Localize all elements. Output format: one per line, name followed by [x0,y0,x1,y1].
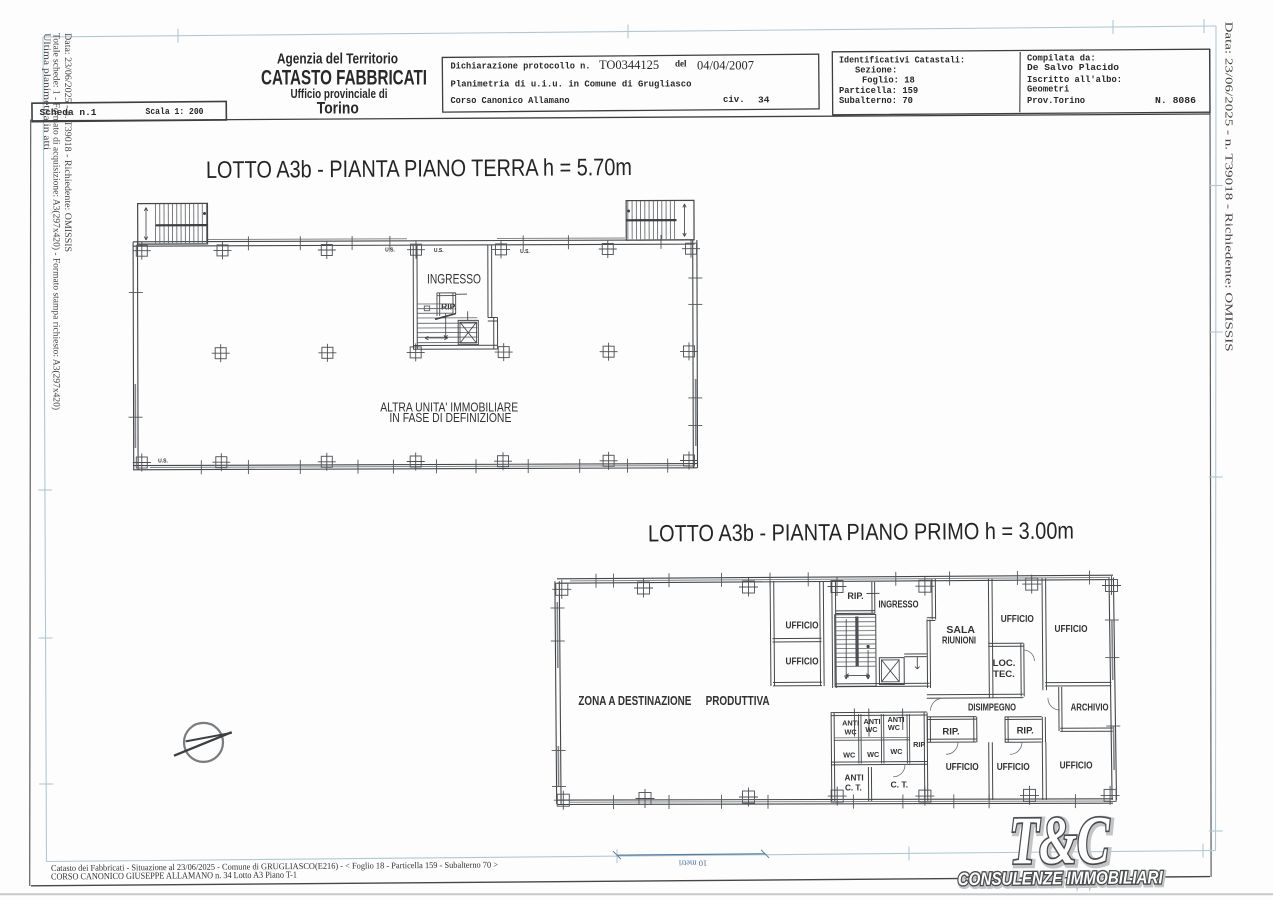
svg-text:WC: WC [843,751,856,760]
svg-text:N. 8086: N. 8086 [1155,96,1196,106]
svg-text:34: 34 [758,95,770,106]
svg-text:UFFICIO: UFFICIO [1060,761,1093,772]
svg-text:C. T.: C. T. [845,784,862,793]
svg-text:ZONA A DESTINAZIONE: ZONA A DESTINAZIONE [578,694,691,708]
svg-text:DISIMPEGNO: DISIMPEGNO [968,701,1016,713]
svg-text:Dichiarazione protocollo n.: Dichiarazione protocollo n. [451,62,591,72]
svg-text:WC: WC [867,750,880,759]
svg-text:Geometri: Geometri [1027,84,1069,94]
svg-text:Iscritto all'albo:: Iscritto all'albo: [1027,75,1122,85]
svg-text:Ultima planimetria in atti: Ultima planimetria in atti [41,33,52,150]
svg-text:Sezione:: Sezione: [855,66,897,76]
svg-text:Particella: 159: Particella: 159 [839,86,918,96]
svg-text:ARCHIVIO: ARCHIVIO [1071,701,1109,713]
svg-text:Compilata da:: Compilata da: [1027,54,1096,64]
svg-text:WC: WC [845,727,858,736]
svg-text:RIP.: RIP. [847,591,863,601]
svg-text:civ.: civ. [723,95,745,105]
svg-text:INGRESSO: INGRESSO [879,598,919,610]
svg-text:UFFICIO: UFFICIO [786,656,819,667]
svg-text:U.S.: U.S. [385,248,395,254]
svg-text:RIP.: RIP. [441,302,456,312]
svg-text:del: del [675,59,687,69]
svg-text:ANTI: ANTI [842,719,859,728]
svg-text:ANTI: ANTI [845,774,864,783]
svg-text:Torino: Torino [317,99,359,118]
svg-text:UFFICIO: UFFICIO [997,762,1030,773]
svg-text:Data: 23/06/2025 - n. T39018 -: Data: 23/06/2025 - n. T39018 - Richieden… [1222,22,1234,352]
svg-text:U.S.: U.S. [158,459,168,465]
svg-text:RIP.: RIP. [942,727,959,738]
svg-text:Identificativi Catastali:: Identificativi Catastali: [839,55,965,65]
svg-text:Planimetria di u.i.u. in Comun: Planimetria di u.i.u. in Comune di Grugl… [451,79,692,89]
svg-text:Prov.Torino: Prov.Torino [1027,96,1085,106]
svg-text:04/04/2007: 04/04/2007 [697,59,754,73]
svg-text:Subalterno: 70: Subalterno: 70 [839,96,913,106]
svg-text:LOTTO A3b - PIANTA PIANO TERRA: LOTTO A3b - PIANTA PIANO TERRA h = 5.70m [206,154,632,184]
svg-text:LOC.: LOC. [993,658,1016,669]
svg-text:U.S.: U.S. [520,249,530,255]
svg-text:UFFICIO: UFFICIO [786,620,819,631]
svg-text:TO0344125: TO0344125 [599,58,659,72]
svg-text:RIUNIONI: RIUNIONI [942,635,976,647]
svg-text:RIP: RIP [913,740,925,749]
svg-text:Scala 1: 200: Scala 1: 200 [146,106,204,117]
svg-text:Foglio: 18: Foglio: 18 [862,76,915,86]
svg-text:WC: WC [888,723,901,732]
svg-text:PRODUTTIVA: PRODUTTIVA [706,694,770,708]
svg-text:Corso Canonico Allamano: Corso Canonico Allamano [451,96,570,106]
svg-text:RIP.: RIP. [1017,726,1034,737]
svg-text:CONSULENZE IMMOBILIARI: CONSULENZE IMMOBILIARI [958,867,1164,889]
svg-text:TEC.: TEC. [993,669,1015,680]
svg-text:CORSO CANONICO GIUSEPPE ALLAMA: CORSO CANONICO GIUSEPPE ALLAMANO n. 34 L… [51,871,297,883]
svg-text:WC: WC [865,725,878,734]
svg-text:Totale schede: 1 - Formato di: Totale schede: 1 - Formato di acquisizio… [52,33,62,410]
svg-text:U.S.: U.S. [434,248,444,254]
svg-text:LOTTO A3b - PIANTA PIANO PRIMO: LOTTO A3b - PIANTA PIANO PRIMO h = 3.00m [648,518,1074,547]
svg-text:IN FASE DI DEFINIZIONE: IN FASE DI DEFINIZIONE [389,410,511,425]
svg-text:UFFICIO: UFFICIO [1001,614,1034,625]
svg-text:INGRESSO: INGRESSO [427,271,481,287]
svg-text:10 metri: 10 metri [678,858,707,868]
svg-text:WC: WC [890,747,903,756]
svg-text:Data: 23/06/2025 - n. T39018 -: Data: 23/06/2025 - n. T39018 - Richieden… [62,33,73,252]
svg-text:UFFICIO: UFFICIO [946,762,979,773]
svg-text:De Salvo Placido: De Salvo Placido [1027,63,1119,73]
svg-text:UFFICIO: UFFICIO [1055,624,1088,635]
svg-text:C. T.: C. T. [890,780,908,790]
